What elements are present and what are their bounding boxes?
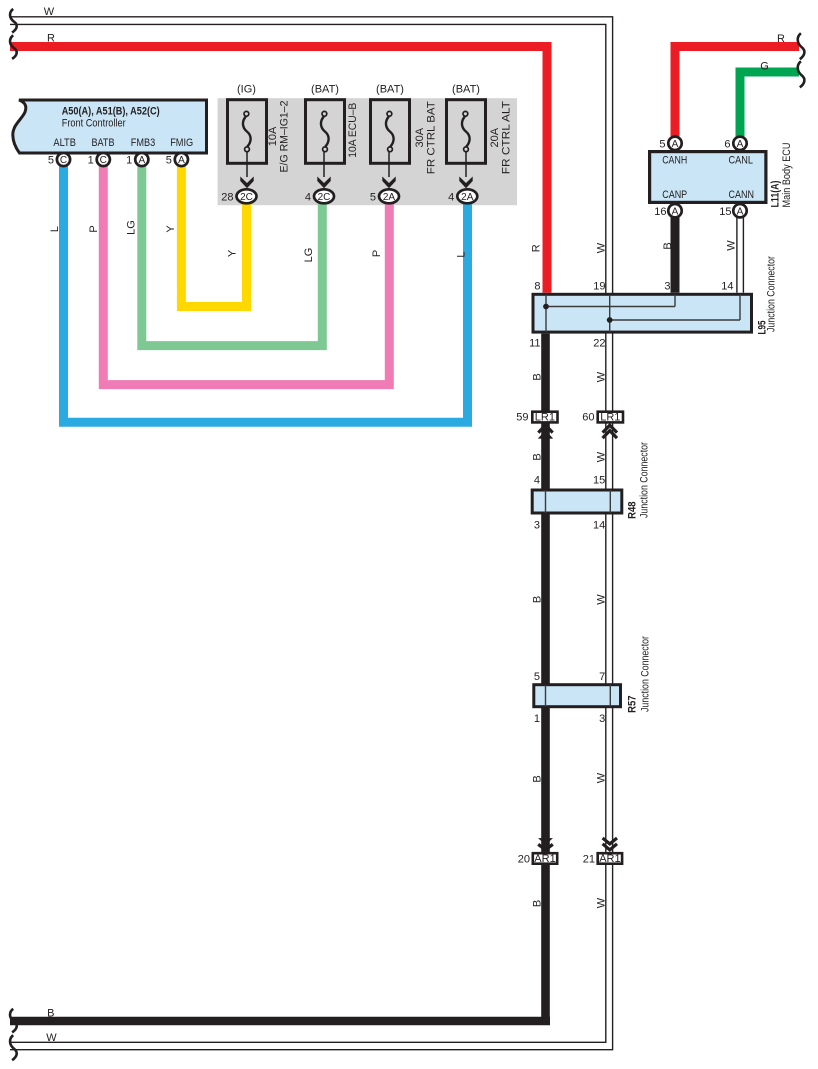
svg-text:8: 8 xyxy=(534,281,540,293)
svg-text:A: A xyxy=(178,155,185,166)
svg-text:P: P xyxy=(371,250,383,257)
svg-text:3: 3 xyxy=(599,713,605,725)
svg-text:C: C xyxy=(60,155,67,166)
svg-text:2A: 2A xyxy=(383,192,396,203)
svg-text:20: 20 xyxy=(518,854,530,866)
svg-text:Y: Y xyxy=(227,249,239,257)
svg-text:E/G RM–IG1–2: E/G RM–IG1–2 xyxy=(279,101,291,173)
svg-text:W: W xyxy=(595,897,607,908)
svg-text:11: 11 xyxy=(529,338,540,350)
svg-text:3: 3 xyxy=(534,520,540,532)
svg-text:R: R xyxy=(47,33,55,45)
svg-text:Y: Y xyxy=(165,225,177,233)
svg-text:R: R xyxy=(777,33,785,45)
svg-text:R57: R57 xyxy=(627,695,639,713)
svg-text:5: 5 xyxy=(48,155,54,167)
svg-text:15: 15 xyxy=(593,475,605,487)
svg-text:(BAT): (BAT) xyxy=(452,84,480,96)
svg-text:2A: 2A xyxy=(461,192,474,203)
svg-text:21: 21 xyxy=(583,854,595,866)
svg-text:16: 16 xyxy=(654,206,666,218)
svg-text:4: 4 xyxy=(534,475,540,487)
svg-text:A: A xyxy=(672,139,679,150)
svg-text:W: W xyxy=(726,240,738,251)
svg-text:19: 19 xyxy=(593,281,605,293)
svg-text:R: R xyxy=(531,244,543,252)
svg-text:22: 22 xyxy=(593,338,605,350)
svg-text:FMIG: FMIG xyxy=(170,137,193,149)
svg-text:A: A xyxy=(737,139,744,150)
svg-text:4: 4 xyxy=(448,191,454,203)
svg-text:CANP: CANP xyxy=(662,189,687,201)
svg-text:15: 15 xyxy=(719,206,731,218)
svg-text:B: B xyxy=(662,242,674,249)
svg-text:FMB3: FMB3 xyxy=(131,137,156,149)
svg-text:BATB: BATB xyxy=(92,137,115,149)
svg-text:CANL: CANL xyxy=(729,155,754,167)
svg-text:B: B xyxy=(532,596,544,603)
svg-text:LG: LG xyxy=(303,248,315,263)
svg-text:14: 14 xyxy=(721,281,733,293)
svg-text:30A: 30A xyxy=(414,127,426,147)
svg-text:Junction Connector: Junction Connector xyxy=(640,636,652,712)
svg-text:L11(A): L11(A) xyxy=(770,180,782,207)
svg-text:B: B xyxy=(532,373,544,380)
svg-text:Front Controller: Front Controller xyxy=(62,118,126,130)
svg-text:Main Body ECU: Main Body ECU xyxy=(781,142,793,207)
svg-text:W: W xyxy=(595,451,607,462)
svg-text:A: A xyxy=(737,206,744,217)
svg-text:G: G xyxy=(760,61,769,73)
svg-text:L: L xyxy=(49,226,61,232)
svg-text:5: 5 xyxy=(534,671,540,683)
svg-text:5: 5 xyxy=(659,139,665,151)
svg-text:W: W xyxy=(46,1032,57,1044)
svg-text:5: 5 xyxy=(166,155,172,167)
svg-text:5: 5 xyxy=(370,191,376,203)
svg-text:LR1: LR1 xyxy=(535,412,555,424)
svg-text:CANH: CANH xyxy=(662,155,687,167)
svg-text:LG: LG xyxy=(126,220,138,235)
svg-text:(BAT): (BAT) xyxy=(311,84,339,96)
svg-text:14: 14 xyxy=(593,520,605,532)
svg-text:(BAT): (BAT) xyxy=(376,84,404,96)
svg-text:60: 60 xyxy=(582,412,594,424)
svg-text:L: L xyxy=(456,251,468,257)
svg-text:B: B xyxy=(47,1007,54,1019)
svg-text:FR CTRL ALT: FR CTRL ALT xyxy=(501,101,513,174)
svg-text:B: B xyxy=(532,453,544,460)
svg-text:(IG): (IG) xyxy=(237,84,256,96)
svg-text:A50(A), A51(B), A52(C): A50(A), A51(B), A52(C) xyxy=(62,106,160,118)
svg-text:W: W xyxy=(595,371,607,382)
svg-text:C: C xyxy=(100,155,107,166)
svg-text:A: A xyxy=(672,206,679,217)
svg-text:7: 7 xyxy=(599,671,605,683)
svg-text:6: 6 xyxy=(724,139,730,151)
svg-text:28: 28 xyxy=(221,191,233,203)
svg-text:3: 3 xyxy=(664,281,670,293)
svg-text:B: B xyxy=(532,900,544,907)
svg-text:FR CTRL BAT: FR CTRL BAT xyxy=(426,101,438,174)
svg-text:B: B xyxy=(532,775,544,782)
svg-text:4: 4 xyxy=(305,191,311,203)
svg-text:R48: R48 xyxy=(627,501,639,519)
svg-text:P: P xyxy=(88,225,100,232)
svg-text:10A: 10A xyxy=(267,126,279,146)
svg-text:Junction Connector: Junction Connector xyxy=(639,442,651,518)
svg-text:AR1: AR1 xyxy=(599,853,620,865)
svg-text:W: W xyxy=(595,242,607,253)
svg-text:W: W xyxy=(595,772,607,783)
svg-text:1: 1 xyxy=(534,713,540,725)
svg-text:W: W xyxy=(44,6,55,18)
svg-text:W: W xyxy=(595,594,607,605)
svg-text:2C: 2C xyxy=(240,192,253,203)
svg-text:10A ECU–B: 10A ECU–B xyxy=(347,103,359,158)
svg-text:A: A xyxy=(138,155,145,166)
svg-text:LR1: LR1 xyxy=(600,412,620,424)
svg-text:2C: 2C xyxy=(318,192,331,203)
svg-text:1: 1 xyxy=(88,155,94,167)
svg-text:ALTB: ALTB xyxy=(53,137,76,149)
svg-text:20A: 20A xyxy=(489,127,501,147)
svg-text:Junction Connector: Junction Connector xyxy=(766,256,778,332)
svg-text:CANN: CANN xyxy=(729,189,755,201)
svg-text:1: 1 xyxy=(126,155,132,167)
svg-text:AR1: AR1 xyxy=(534,853,555,865)
svg-text:59: 59 xyxy=(516,412,528,424)
